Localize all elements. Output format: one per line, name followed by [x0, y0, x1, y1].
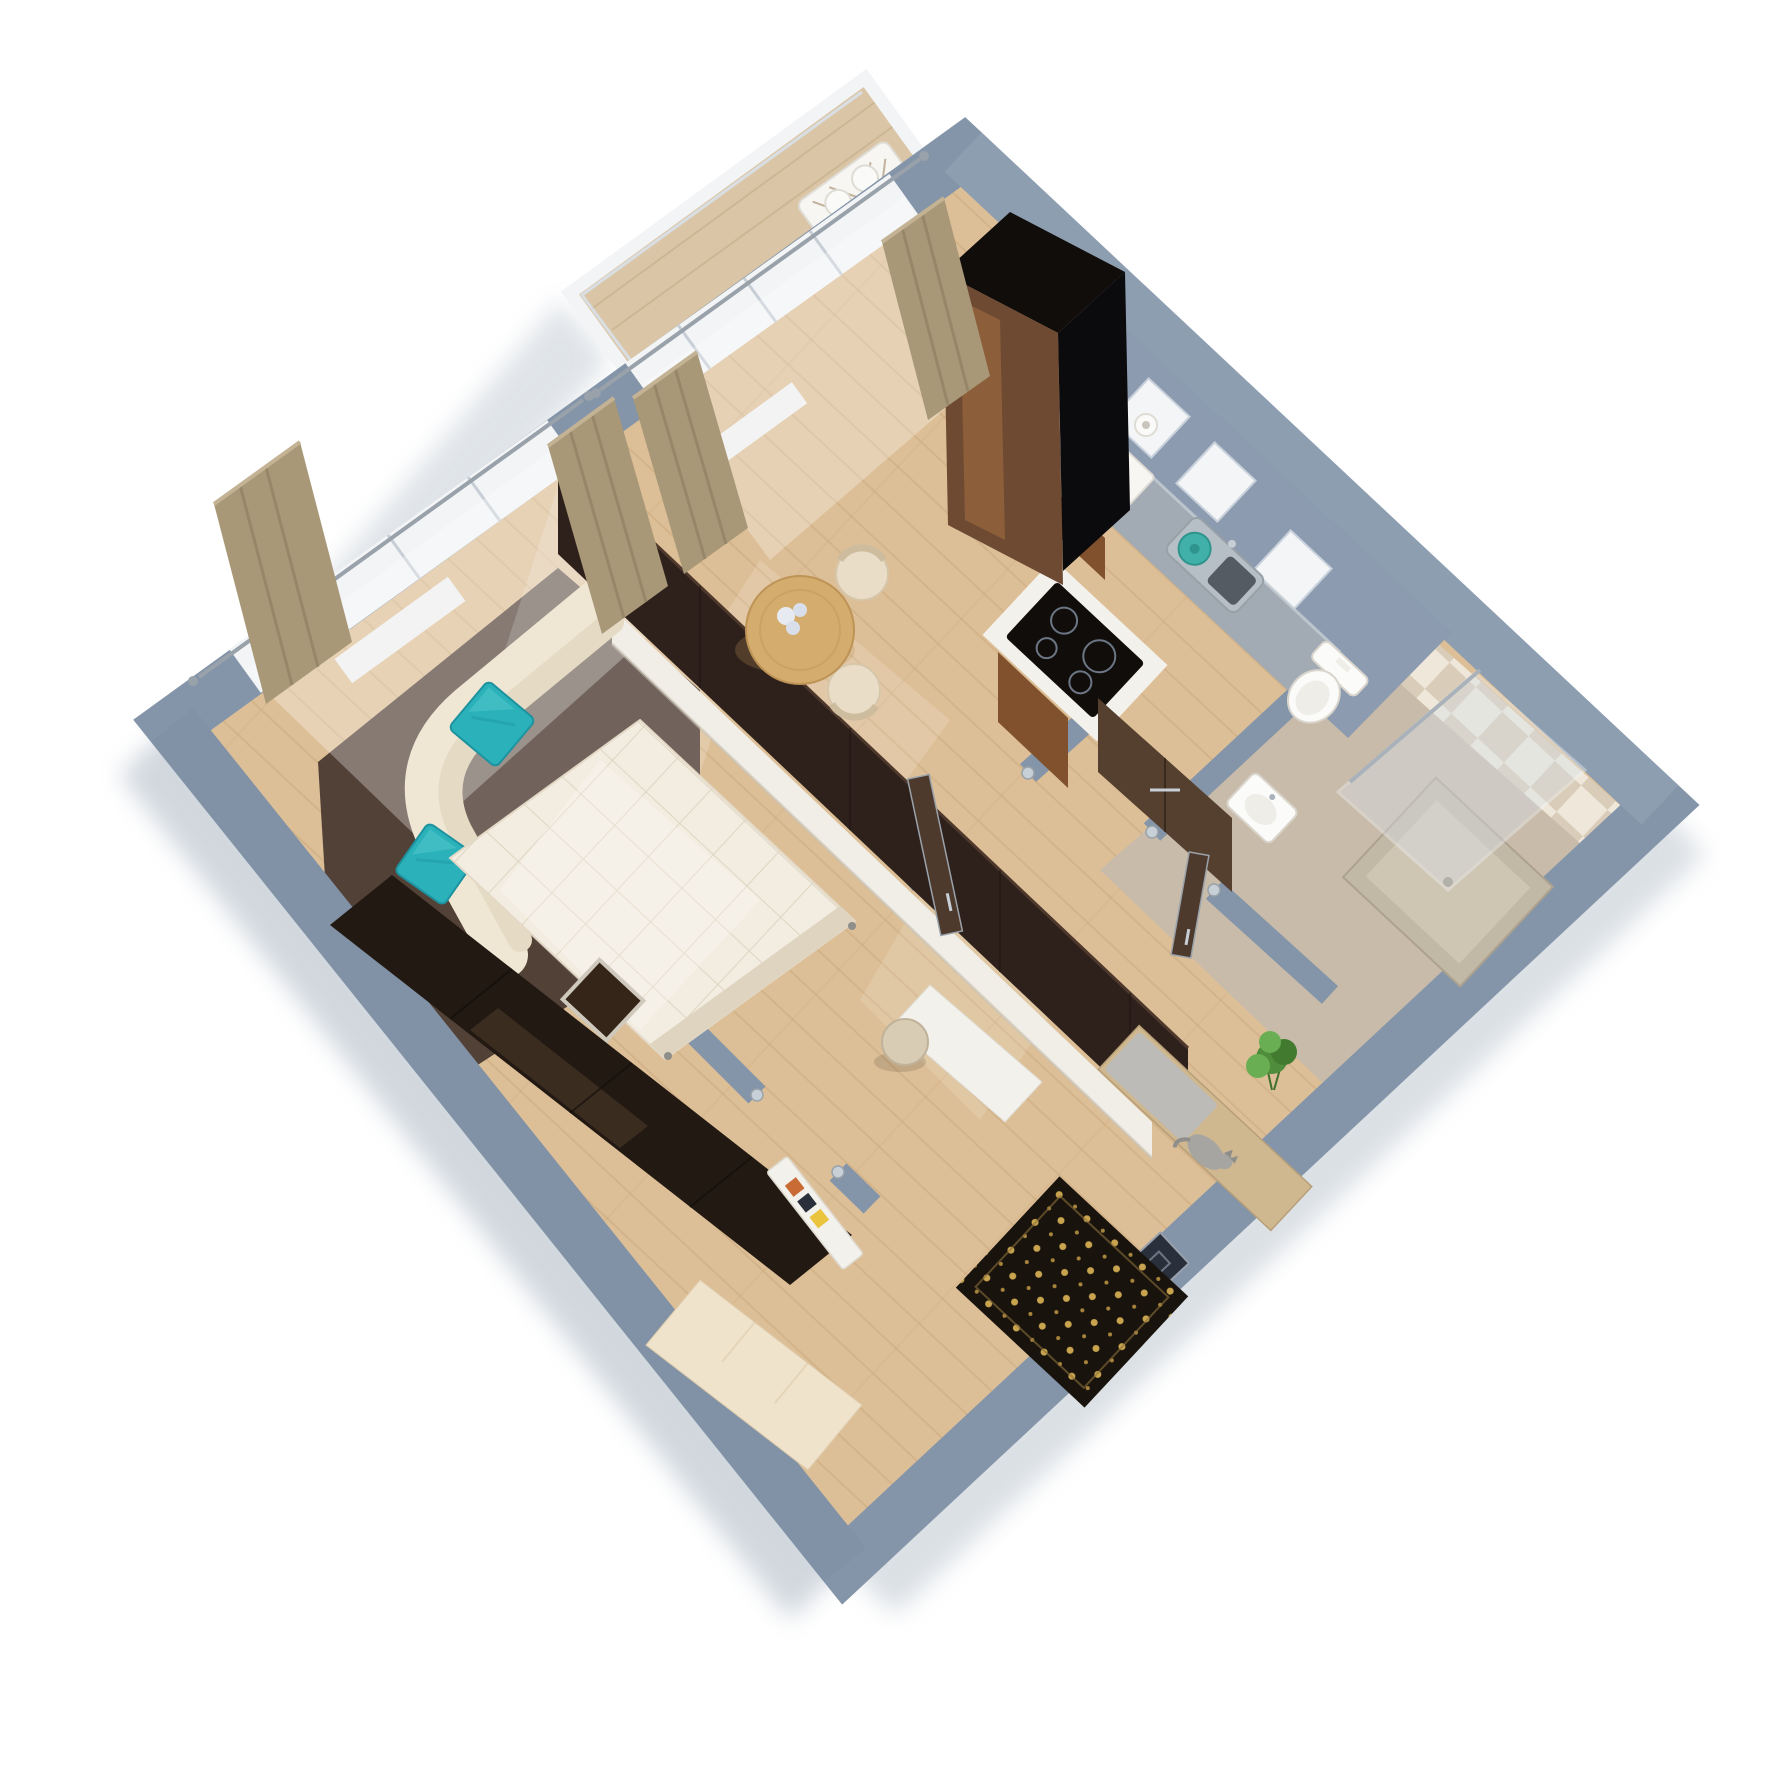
door-jamb: [1022, 767, 1034, 779]
door-jamb: [1146, 826, 1158, 838]
paper-roll-core: [1142, 421, 1150, 429]
dining-chair: [836, 548, 888, 600]
stool: [882, 1019, 928, 1065]
door-jamb: [1208, 884, 1220, 896]
dining-chair: [828, 664, 880, 717]
bed-foot: [664, 1052, 672, 1060]
rod-finial: [584, 391, 594, 401]
plant-foliage: [1246, 1054, 1270, 1078]
rod-finial: [188, 676, 198, 686]
door-jamb: [832, 1166, 844, 1178]
door-jamb: [751, 1089, 763, 1101]
plant-foliage: [1259, 1031, 1281, 1053]
flower: [786, 621, 800, 635]
flower: [793, 603, 807, 617]
round-dining-table: [746, 576, 854, 684]
bed-foot: [848, 922, 856, 930]
render-canvas: [0, 0, 1776, 1776]
tall-black-cabinet: [943, 212, 1130, 585]
floorplan-3d-render: [0, 0, 1776, 1776]
rod-finial: [919, 151, 929, 161]
